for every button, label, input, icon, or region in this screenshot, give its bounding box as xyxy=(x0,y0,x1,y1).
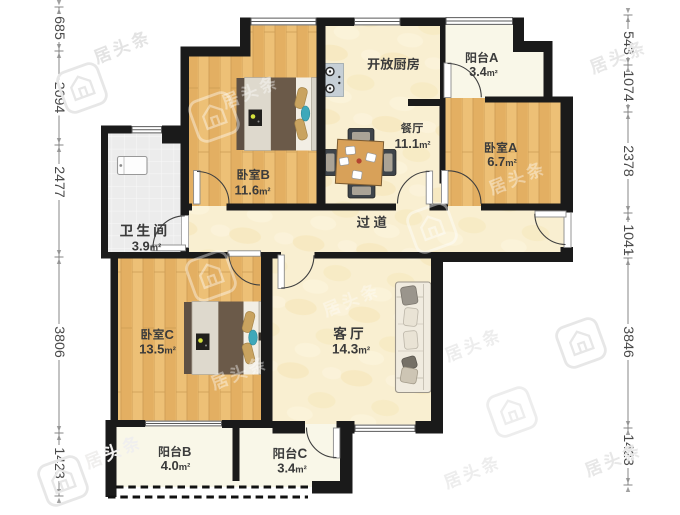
svg-text:11.6m²: 11.6m² xyxy=(234,183,270,198)
svg-text:13.5m²: 13.5m² xyxy=(139,342,176,357)
svg-text:685: 685 xyxy=(51,16,67,40)
svg-text:3.4m²: 3.4m² xyxy=(469,65,497,79)
svg-text:B: B xyxy=(261,167,270,182)
svg-text:3806: 3806 xyxy=(51,326,67,358)
svg-text:1041: 1041 xyxy=(620,224,636,256)
svg-text:2477: 2477 xyxy=(51,166,67,198)
svg-text:3.4m²: 3.4m² xyxy=(277,461,307,476)
svg-text:A: A xyxy=(508,140,518,155)
svg-text:2378: 2378 xyxy=(620,145,636,177)
svg-text:6.7m²: 6.7m² xyxy=(487,154,517,169)
svg-text:A: A xyxy=(489,50,499,65)
svg-text:4.0m²: 4.0m² xyxy=(161,458,191,473)
svg-text:B: B xyxy=(182,444,191,459)
svg-text:3846: 3846 xyxy=(620,326,636,358)
svg-text:C: C xyxy=(298,446,308,461)
svg-text:1074: 1074 xyxy=(620,70,636,102)
svg-text:11.1m²: 11.1m² xyxy=(394,136,430,151)
svg-text:3.9m²: 3.9m² xyxy=(132,239,162,254)
svg-text:C: C xyxy=(165,327,175,342)
